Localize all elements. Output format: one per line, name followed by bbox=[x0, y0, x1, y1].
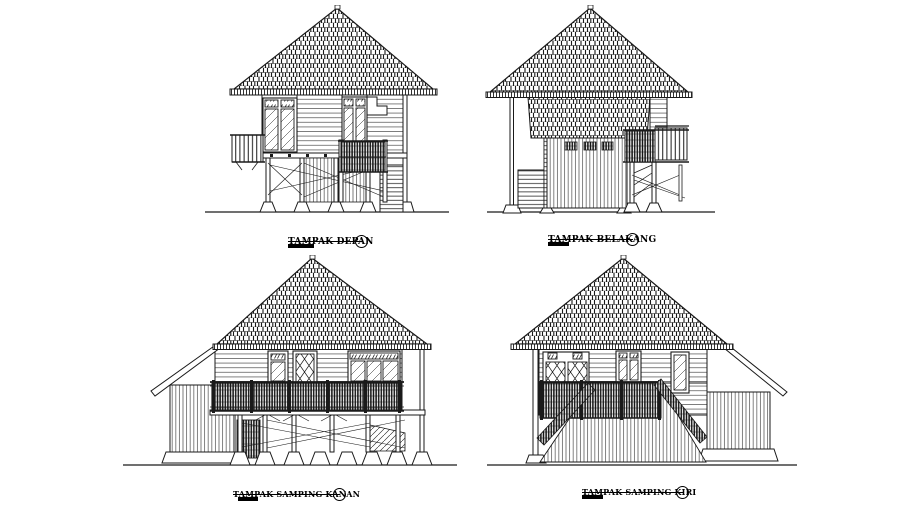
title-underline-bar bbox=[288, 244, 314, 248]
stilts-right bbox=[630, 162, 685, 203]
lean-to-wall bbox=[699, 392, 778, 461]
roof bbox=[230, 5, 437, 95]
view-label-front: TAMPAK DEPAN bbox=[288, 229, 362, 242]
stairs bbox=[518, 170, 544, 208]
window-left bbox=[263, 98, 297, 152]
footings bbox=[260, 202, 376, 212]
eave-column bbox=[420, 349, 424, 452]
door-middle bbox=[616, 351, 641, 382]
view-label-right-side: TAMPAK SAMPING KANAN bbox=[233, 482, 340, 495]
view-label-left-side: TAMPAK SAMPING KIRI bbox=[582, 480, 683, 493]
title-marker-circle-icon bbox=[626, 233, 639, 246]
balcony-right bbox=[623, 126, 689, 162]
door-left bbox=[268, 351, 288, 383]
elevation-right-side-drawing bbox=[120, 255, 460, 473]
footings bbox=[230, 452, 432, 465]
porch-railing bbox=[538, 380, 663, 420]
title-marker-circle-icon bbox=[676, 486, 689, 499]
title-underline-bar bbox=[548, 242, 569, 246]
title-marker-circle-icon bbox=[355, 235, 368, 248]
elevation-front-drawing bbox=[200, 5, 450, 217]
roof bbox=[486, 5, 692, 98]
drawing-sheet: TAMPAK DEPAN TAMPAK BELAKANG TAMPAK SAMP… bbox=[0, 0, 897, 505]
elevation-back-drawing bbox=[480, 5, 720, 217]
elevation-left-side-drawing bbox=[485, 255, 805, 473]
view-label-back: TAMPAK BELAKANG bbox=[548, 227, 633, 240]
window-right bbox=[671, 352, 689, 393]
window-right bbox=[348, 351, 400, 383]
title-underline-bar bbox=[582, 495, 603, 499]
balcony-left bbox=[230, 135, 265, 170]
veranda-railing bbox=[210, 380, 404, 413]
title-marker-circle-icon bbox=[333, 488, 346, 501]
title-underline-bar bbox=[238, 497, 258, 501]
